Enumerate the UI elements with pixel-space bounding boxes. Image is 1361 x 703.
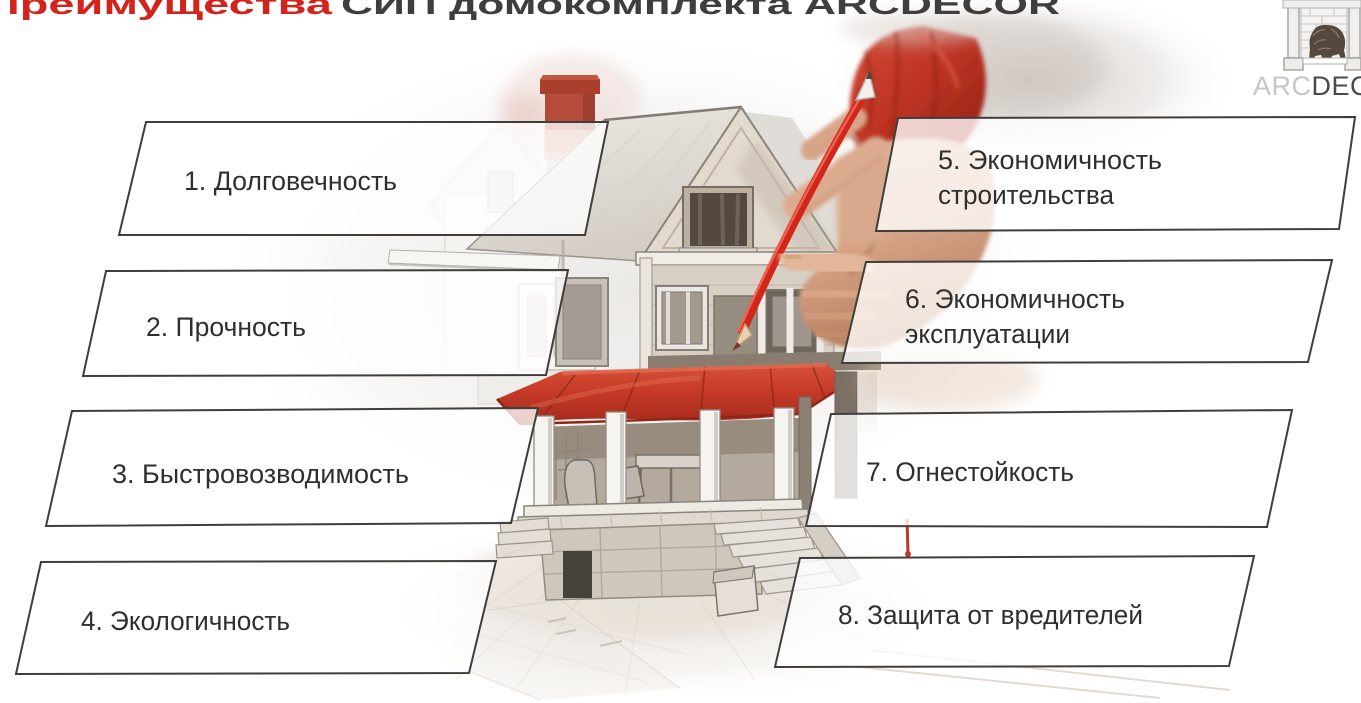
svg-text:4. Экологичность: 4. Экологичность (81, 606, 290, 636)
svg-text:строительства: строительства (938, 180, 1115, 210)
svg-text:3. Быстровозводимость: 3. Быстровозводимость (112, 459, 409, 489)
svg-text:ARCDECOR: ARCDECOR (1253, 71, 1361, 101)
svg-text:СИП домокомплекта ARCDECOR: СИП домокомплекта ARCDECOR (341, 0, 1060, 21)
svg-text:Преимущества: Преимущества (0, 0, 333, 21)
svg-text:8. Защита от вредителей: 8. Защита от вредителей (838, 600, 1143, 630)
svg-text:1. Долговечность: 1. Долговечность (184, 166, 397, 196)
svg-text:7. Огнестойкость: 7. Огнестойкость (866, 457, 1074, 487)
svg-text:5. Экономичность: 5. Экономичность (938, 145, 1162, 175)
svg-text:2. Прочность: 2. Прочность (146, 312, 306, 342)
svg-text:эксплуатации: эксплуатации (905, 319, 1070, 349)
svg-text:6. Экономичность: 6. Экономичность (905, 284, 1125, 314)
